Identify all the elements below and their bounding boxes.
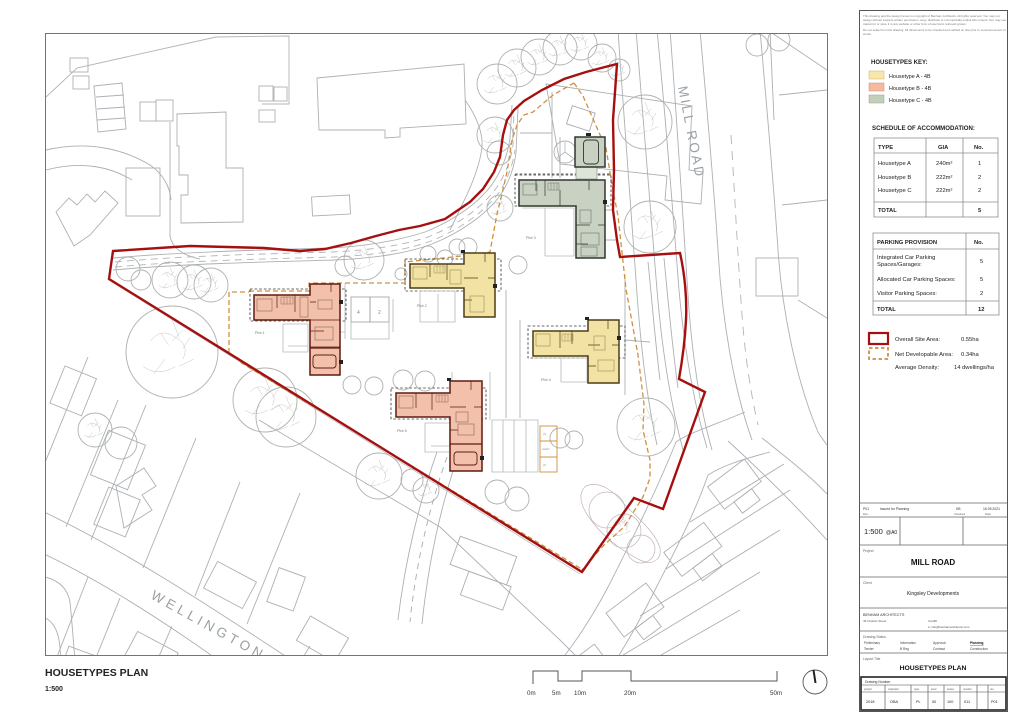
svg-text:Checked: Checked [954,512,965,516]
svg-text:Net Developable Area:: Net Developable Area: [895,352,953,358]
svg-text:00: 00 [932,700,936,704]
svg-text:Cardiff: Cardiff [928,619,937,623]
svg-text:Drawing Number: Drawing Number [865,680,891,684]
svg-text:series: series [947,687,955,691]
svg-text:rev.: rev. [990,687,994,691]
svg-text:Housetype A: Housetype A [878,161,911,167]
svg-text:works.: works. [863,32,872,36]
svg-text:2: 2 [378,310,381,316]
svg-text:Kingsley Developments: Kingsley Developments [907,591,960,597]
svg-text:Information: Information [900,641,916,645]
svg-text:011: 011 [964,700,970,704]
svg-text:Housetype C - 4B: Housetype C - 4B [889,98,932,104]
svg-text:Plot 4: Plot 4 [541,378,551,382]
svg-text:0.55ha: 0.55ha [961,337,980,343]
svg-text:B Reg: B Reg [900,647,909,651]
svg-text:level: level [931,687,937,691]
svg-text:14 dwellings/ha: 14 dwellings/ha [954,365,995,371]
svg-text:Overall Site Area:: Overall Site Area: [895,337,940,343]
svg-text:100: 100 [947,700,953,704]
svg-text:BENHAM ARCHITECTS: BENHAM ARCHITECTS [863,613,905,617]
svg-text:Contract: Contract [933,647,945,651]
svg-text:2: 2 [978,175,981,181]
svg-text:number: number [963,687,972,691]
svg-text:PL: PL [916,700,921,704]
svg-text:(f): (f) [543,432,546,436]
svg-text:Housetype A - 4B: Housetype A - 4B [889,74,931,80]
svg-text:@A0: @A0 [886,530,897,536]
svg-text:Construction: Construction [970,647,988,651]
svg-text:2: 2 [980,291,983,297]
svg-text:1:500: 1:500 [45,686,63,693]
svg-text:PARKING PROVISION: PARKING PROVISION [877,240,937,246]
svg-text:Approval: Approval [933,641,946,645]
svg-text:240m²: 240m² [936,161,953,167]
svg-text:Housetype B: Housetype B [878,175,911,181]
svg-text:KB: KB [956,507,961,511]
svg-text:Layout Title: Layout Title [863,657,880,661]
svg-text:Housetype C: Housetype C [878,188,912,194]
svg-text:20m: 20m [624,690,636,697]
svg-text:Integrated Car Parking: Integrated Car Parking [877,255,935,261]
svg-text:Allocated Car Parking Spaces:: Allocated Car Parking Spaces: [877,277,956,283]
svg-text:5: 5 [980,259,983,265]
svg-text:P01: P01 [991,700,998,704]
svg-text:0.34ha: 0.34ha [961,352,980,358]
svg-text:MILL ROAD: MILL ROAD [911,558,956,567]
svg-text:type: type [914,687,919,691]
svg-text:e: info@benhamarchitects.com: e: info@benhamarchitects.com [928,625,970,629]
svg-text:Do not scale from this drawing: Do not scale from this drawing. All dime… [863,28,1006,32]
svg-text:Issued for Planning: Issued for Planning [880,507,909,511]
svg-text:Spaces/Garages:: Spaces/Garages: [877,262,922,268]
svg-text:TYPE: TYPE [878,145,893,151]
svg-text:2018: 2018 [866,700,874,704]
svg-text:16.09.2021: 16.09.2021 [983,507,1000,511]
svg-text:OBA: OBA [890,700,898,704]
svg-text:HOUSETYPES KEY:: HOUSETYPES KEY: [871,60,928,66]
svg-text:Preliminary: Preliminary [864,641,880,645]
svg-text:carbin: carbin [542,447,550,451]
svg-text:TOTAL: TOTAL [878,208,897,214]
svg-text:5: 5 [980,277,983,283]
svg-text:1:500: 1:500 [864,527,883,536]
svg-text:4: 4 [357,310,360,316]
svg-text:2: 2 [978,188,981,194]
svg-text:Project: Project [863,549,874,553]
svg-text:SCHEDULE OF ACCOMMODATION:: SCHEDULE OF ACCOMMODATION: [872,125,975,132]
svg-text:Planning: Planning [970,641,984,645]
svg-text:(f): (f) [543,463,546,467]
svg-text:Visitor Parking Spaces:: Visitor Parking Spaces: [877,291,937,297]
svg-text:5m: 5m [552,690,561,697]
svg-text:10m: 10m [574,690,586,697]
svg-text:originator: originator [888,687,899,691]
svg-text:HOUSETYPES PLAN: HOUSETYPES PLAN [900,665,967,672]
svg-text:Plot 2: Plot 2 [417,304,427,308]
svg-text:Plot 3: Plot 3 [526,236,536,240]
svg-text:50m: 50m [770,690,782,697]
svg-text:Rev.: Rev. [863,512,869,516]
svg-text:Housetype B - 4B: Housetype B - 4B [889,86,932,92]
svg-text:Average Density:: Average Density: [895,365,939,371]
svg-text:Client: Client [863,581,872,585]
svg-text:12: 12 [978,307,984,313]
svg-text:transmit it or store it in any: transmit it or store it in any website o… [863,22,967,26]
svg-text:TOTAL: TOTAL [877,307,896,313]
svg-text:HOUSETYPES PLAN: HOUSETYPES PLAN [45,667,148,679]
svg-text:49 Charles Street: 49 Charles Street [863,619,887,623]
svg-text:Plot 5: Plot 5 [397,429,407,433]
svg-text:Tender: Tender [864,647,875,651]
svg-text:No.: No. [974,240,984,246]
svg-text:No.: No. [974,145,984,151]
svg-text:0m: 0m [527,690,536,697]
svg-text:Drawing Status: Drawing Status [863,635,886,639]
svg-text:1: 1 [978,161,981,167]
svg-text:Plot 1: Plot 1 [255,331,265,335]
svg-text:GIA: GIA [938,145,949,151]
svg-text:222m²: 222m² [936,175,953,181]
svg-text:P01: P01 [863,507,869,511]
svg-text:222m²: 222m² [936,188,953,194]
svg-text:project: project [864,687,872,691]
svg-text:Date: Date [985,512,991,516]
